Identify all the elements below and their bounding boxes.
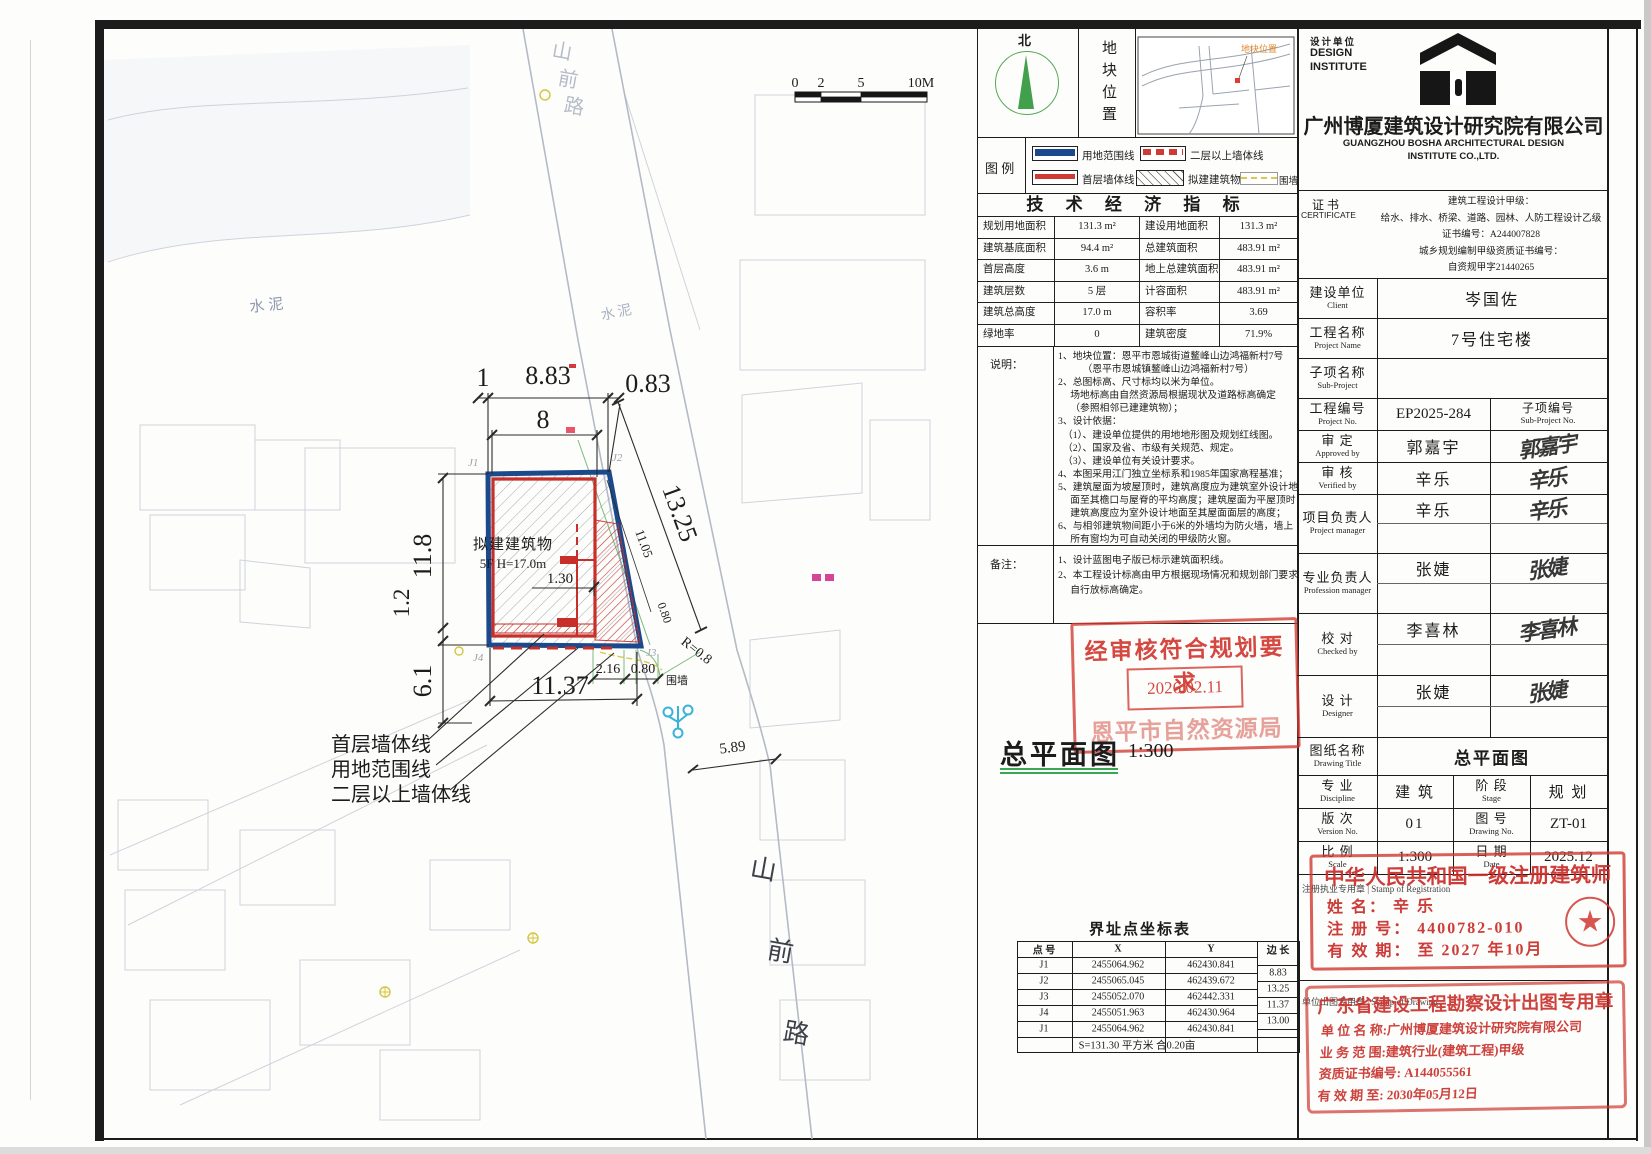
- scale-bar: 0 2 5 10M: [792, 76, 935, 102]
- row-label-cn: 设 计: [1321, 694, 1353, 709]
- ind-cell: 3.69: [1220, 303, 1297, 325]
- coords-edge: 8.83: [1269, 968, 1287, 979]
- tb-row-project-name: 工程名称Project Name 7号住宅楼: [1298, 318, 1607, 358]
- ind-cell: 绿地率: [978, 325, 1055, 347]
- coords-point: J2: [1040, 976, 1049, 987]
- ind-cell: 建筑密度: [1140, 325, 1220, 347]
- row-label-cn: 图纸名称: [1309, 744, 1365, 759]
- dim-11-37: 11.37: [531, 671, 589, 700]
- dim-0-83: 0.83: [625, 369, 671, 398]
- row-label-cn: 项目负责人: [1302, 511, 1372, 526]
- tb-row-profession-manager: 专业负责人Profession manager 张婕 张婕: [1298, 553, 1607, 613]
- dim-8-83: 8.83: [525, 361, 571, 390]
- row-value: 辛乐: [1377, 494, 1490, 524]
- row-value: [1377, 358, 1607, 398]
- frame-top: [95, 20, 1641, 29]
- svg-text:5: 5: [858, 76, 865, 91]
- tb-row-discipline-stage: 专 业Discipline 建 筑 阶 段Stage 规 划: [1298, 775, 1607, 808]
- indicators-title: 技 术 经 济 指 标: [978, 194, 1297, 217]
- row-label-en: Verified by: [1318, 481, 1356, 491]
- institution-stamp: 广东省建设工程勘察设计出图专用章 单 位 名 称:广州博厦建筑设计研究院有限公司…: [1305, 980, 1627, 1114]
- ind-cell: 131.3 m²: [1220, 217, 1297, 239]
- row-extra-en: Sub-Project No.: [1521, 416, 1576, 426]
- ind-cell: 总建筑面积: [1140, 239, 1220, 261]
- coords-x: 2455051.963: [1092, 1008, 1145, 1019]
- tb-row-version-dwgno: 版 次Version No. 01 图 号Drawing No. ZT-01: [1298, 808, 1607, 841]
- meta-label-en: Stage: [1482, 794, 1501, 804]
- meta-value: 建 筑: [1377, 775, 1453, 808]
- row-value: 张婕: [1377, 675, 1490, 706]
- titleblock-right: [1607, 29, 1609, 1138]
- dim-1-30: 1.30: [547, 571, 573, 587]
- coords-y: 462442.331: [1187, 992, 1235, 1003]
- location-map: 地块位置: [1137, 36, 1295, 135]
- approval-stamp-date: 2026.02.11: [1127, 666, 1244, 711]
- frame-right: [1636, 20, 1638, 1141]
- row-value: 李喜林: [1377, 613, 1490, 644]
- coords-edge: 11.37: [1267, 1000, 1289, 1011]
- row-label-en: Project manager: [1310, 526, 1365, 536]
- coords-header: Y: [1207, 944, 1214, 955]
- coords-x: 2455065.045: [1092, 976, 1145, 987]
- scan-edge-right: [1644, 0, 1651, 1154]
- svg-text:10M: 10M: [908, 76, 935, 91]
- architect-stamp-valid: 有 效 期： 至 2027 年10月: [1327, 935, 1543, 961]
- row-label-en: Checked by: [1317, 647, 1357, 657]
- row-label-en: Project Name: [1314, 341, 1361, 351]
- legend-label-fence: 围墙: [1279, 173, 1298, 187]
- utility-pole-icon: [664, 706, 693, 738]
- site-plan-drawing: 1 8.83 0.83 8 11.8 1.2 6.1 13.25 11.05 0…: [104, 29, 977, 1139]
- design-unit-en2: INSTITUTE: [1310, 61, 1367, 73]
- tb-row-project-no: 工程编号Project No. EP2025-284 子项编号Sub-Proje…: [1298, 398, 1607, 430]
- row-label-en: Client: [1327, 301, 1348, 311]
- row-label-cn: 审 定: [1321, 434, 1353, 449]
- remarks-label: 备注：: [990, 556, 1023, 572]
- plan-title-underline-1: [1000, 768, 1118, 770]
- row-label-cn: 工程编号: [1309, 402, 1365, 417]
- ind-cell: 规划用地面积: [978, 217, 1055, 239]
- row-value: 张婕: [1377, 553, 1490, 583]
- ind-cell: 建筑层数: [978, 282, 1055, 304]
- dim-11-05: 11.05: [632, 527, 656, 559]
- plan-title: 总平面图: [1000, 733, 1120, 772]
- coords-y: 462430.964: [1187, 1008, 1235, 1019]
- coords-y: 462430.841: [1187, 1024, 1235, 1035]
- ind-cell: 0: [1055, 325, 1140, 347]
- meta-value: ZT-01: [1530, 808, 1607, 841]
- building-label: 拟建建筑物: [473, 536, 553, 553]
- tb-row-designer: 设 计Designer 张婕 张婕: [1298, 675, 1607, 737]
- cert-lines: 建筑工程设计甲级： 给水、排水、桥梁、道路、园林、人防工程设计乙级 证书编号：A…: [1378, 194, 1604, 277]
- map-site-marker: [1235, 78, 1240, 83]
- road-name-top: 山 前 路: [550, 39, 586, 120]
- coords-point: J4: [1040, 1008, 1049, 1019]
- ind-cell: 5 层: [1055, 282, 1140, 304]
- institution-stamp-lines: 单 位 名 称:广州博厦建筑设计研究院有限公司 业 务 范 围:建筑行业(建筑工…: [1317, 1016, 1583, 1107]
- dim-13-25: 13.25: [656, 481, 703, 546]
- cert-label-en: CERTIFICATE: [1301, 210, 1356, 220]
- svg-text:前: 前: [765, 935, 796, 968]
- company-name-cn: 广州博厦建筑设计研究院有限公司: [1300, 110, 1607, 139]
- dim-0-80-right: 0.80: [655, 600, 675, 625]
- cement-label-right: 水泥: [600, 301, 637, 324]
- company-name-en1: GUANGZHOU BOSHA ARCHITECTURAL DESIGN: [1300, 138, 1607, 149]
- ind-cell: 71.9%: [1220, 325, 1297, 347]
- architect-stamp-emblem: [1565, 896, 1616, 947]
- row-label-cn: 建设单位: [1309, 286, 1365, 301]
- ind-cell: 地上总建筑面积: [1140, 260, 1220, 282]
- row-label-en: Approved by: [1315, 449, 1360, 459]
- meta-label: 专 业: [1321, 779, 1353, 794]
- indicators-table: 技 术 经 济 指 标 规划用地面积131.3 m²建设用地面积131.3 m²…: [978, 194, 1297, 347]
- legend-title: 图 例: [985, 158, 1014, 177]
- legend-label-boundary: 用地范围线: [1082, 148, 1135, 163]
- remarks-text: 1、设计蓝图电子版已标示建筑面积线。 2、本工程设计标高由甲方根据现场情况和规划…: [1058, 553, 1294, 598]
- map-site-label: 地块位置: [1241, 43, 1277, 54]
- coords-edge: 13.25: [1267, 984, 1290, 995]
- line-legend-v: [1025, 137, 1026, 193]
- row-label-cn: 校 对: [1321, 632, 1353, 647]
- tb-row-verified: 审 核Verified by 辛乐 辛乐: [1298, 462, 1607, 494]
- water-wash: [104, 45, 470, 262]
- coords-point: J1: [1040, 1024, 1049, 1035]
- meta-label-en: Drawing No.: [1469, 827, 1513, 837]
- svg-text:J4: J4: [473, 652, 484, 664]
- ind-cell: 容积率: [1140, 303, 1220, 325]
- ind-cell: 建设用地面积: [1140, 217, 1220, 239]
- signature: 辛乐: [1528, 460, 1569, 496]
- row-label-cn: 审 核: [1321, 466, 1353, 481]
- institution-stamp-title: 广东省建设工程勘察设计出图专用章: [1308, 987, 1622, 1018]
- tb-row-drawing-title: 图纸名称Drawing Title 总平面图: [1298, 737, 1607, 775]
- dim-11-8: 11.8: [408, 534, 437, 579]
- legend-label-building: 拟建建筑物: [1188, 172, 1241, 187]
- row-value: 辛乐: [1377, 462, 1490, 494]
- scan-edge-bottom: [0, 1147, 1651, 1154]
- north-label: 北: [1018, 30, 1031, 49]
- ind-cell: 131.3 m²: [1055, 217, 1140, 239]
- row-label-cn: 子项名称: [1309, 366, 1365, 381]
- leader-lines: [428, 634, 614, 790]
- ind-cell: 建筑基底面积: [978, 239, 1055, 261]
- ind-cell: 3.6 m: [1055, 260, 1140, 282]
- legend-label-upper-wall: 二层以上墙体线: [1190, 148, 1264, 163]
- tb-row-project-manager: 项目负责人Project manager 辛乐 辛乐: [1298, 494, 1607, 553]
- tb-row-approved: 审 定Approved by 郭嘉宇 郭嘉宇: [1298, 430, 1607, 462]
- label-first-floor-wall: 首层墙体线: [331, 733, 431, 756]
- meta-label-en: Discipline: [1320, 794, 1355, 804]
- line-notes-v: [1053, 347, 1054, 623]
- coords-edge: 13.00: [1267, 1016, 1290, 1027]
- legend-symbol-building: [1136, 170, 1184, 186]
- legend-symbol-upper-wall: [1140, 146, 1186, 161]
- ind-cell: 建筑总高度: [978, 303, 1055, 325]
- building-spec-label: 5F H=17.0m: [480, 556, 547, 571]
- label-fence: 围墙: [666, 673, 688, 687]
- legend-label-first-wall: 首层墙体线: [1082, 172, 1135, 187]
- plan-title-underline-2: [1000, 772, 1118, 774]
- tb-row-subproject: 子项名称Sub-Project: [1298, 358, 1607, 398]
- coords-header: 点 号: [1033, 942, 1056, 957]
- legend-symbol-first-wall: [1032, 170, 1078, 185]
- signature: 张婕: [1528, 672, 1569, 708]
- drawing-sheet: 1 8.83 0.83 8 11.8 1.2 6.1 13.25 11.05 0…: [0, 0, 1651, 1154]
- dim-5-89: 5.89: [719, 738, 747, 757]
- ind-cell: 首层高度: [978, 260, 1055, 282]
- svg-text:山: 山: [748, 853, 779, 886]
- row-value: 7号住宅楼: [1377, 318, 1607, 358]
- svg-text:路: 路: [781, 1017, 812, 1050]
- row-value: 郭嘉宇: [1377, 430, 1490, 462]
- signature: 李喜林: [1518, 609, 1578, 648]
- svg-text:J3: J3: [646, 647, 657, 659]
- architect-stamp-title: 中华人民共和国一级注册建筑师: [1312, 857, 1622, 890]
- row-value: EP2025-284: [1377, 398, 1490, 430]
- coords-x: 2455064.962: [1092, 1024, 1145, 1035]
- notes-text: 1、地块位置：恩平市恩城街道鳌峰山边鸿福新村7号 （恩平市恩城镇鳌峰山边鸿福新村…: [1058, 350, 1294, 546]
- dim-radius: R=0.8: [678, 635, 715, 668]
- coords-point: J1: [1040, 960, 1049, 971]
- row-label-cn: 工程名称: [1309, 326, 1365, 341]
- coords-x: 2455052.070: [1092, 992, 1145, 1003]
- design-unit-cn: 设计单位: [1310, 34, 1356, 48]
- site-location-panel-label: 地块位置: [1098, 40, 1119, 128]
- svg-text:0: 0: [792, 76, 799, 91]
- design-unit-en1: DESIGN: [1310, 47, 1352, 59]
- dim-2-16: 2.16: [596, 662, 621, 677]
- label-upper-wall: 二层以上墙体线: [331, 783, 471, 806]
- svg-text:路: 路: [562, 94, 586, 120]
- row-label-en: Profession manager: [1304, 586, 1371, 596]
- legend-symbol-boundary: [1032, 146, 1078, 161]
- line-north-v1: [1078, 29, 1079, 137]
- signature: 辛乐: [1528, 491, 1569, 527]
- tb-row-client: 建设单位Client 岑国佐: [1298, 278, 1607, 318]
- row-label-cn: 专业负责人: [1302, 571, 1372, 586]
- coords-y: 462430.841: [1187, 960, 1235, 971]
- plan-title-scale: 1:300: [1128, 740, 1174, 763]
- company-name-en2: INSTITUTE CO.,LTD.: [1300, 151, 1607, 162]
- svg-text:2: 2: [818, 76, 825, 91]
- ind-cell: 计容面积: [1140, 282, 1220, 304]
- coords-table: 点 号 X Y 边 长 J1 2455064.962 462430.841 J2…: [1017, 941, 1300, 1053]
- row-extra-cn: 子项编号: [1522, 402, 1574, 416]
- meta-label: 图 号: [1475, 812, 1507, 827]
- dim-0-80-bottom: 0.80: [631, 662, 656, 677]
- scan-edge-left: [30, 40, 31, 1100]
- row-label-en: Sub-Project: [1317, 381, 1357, 391]
- coords-header: X: [1114, 944, 1121, 955]
- svg-text:前: 前: [556, 67, 580, 93]
- dim-1-2: 1.2: [389, 589, 414, 618]
- notes-label: 说明：: [990, 356, 1023, 372]
- line-north-v2: [1135, 29, 1136, 137]
- coords-y: 462439.672: [1187, 976, 1235, 987]
- row-label-en: Project No.: [1318, 417, 1357, 427]
- row-value: 岑国佐: [1377, 278, 1607, 318]
- meta-label: 阶 段: [1475, 779, 1507, 794]
- tb-row-checked: 校 对Checked by 李喜林 李喜林: [1298, 613, 1607, 675]
- coords-footer: S=131.30 平方米 合0.20亩: [1079, 1038, 1196, 1053]
- signature: 郭嘉宇: [1518, 427, 1578, 466]
- meta-label: 版 次: [1321, 812, 1353, 827]
- dim-1: 1: [477, 363, 490, 392]
- svg-text:山: 山: [550, 39, 574, 65]
- frame-left: [95, 20, 104, 1141]
- meta-value: 01: [1377, 808, 1453, 841]
- meta-label-en: Version No.: [1317, 827, 1358, 837]
- row-label-en: Designer: [1322, 709, 1353, 719]
- ind-cell: 483.91 m²: [1220, 282, 1297, 304]
- ind-cell: 483.91 m²: [1220, 260, 1297, 282]
- dim-6-1: 6.1: [408, 665, 437, 698]
- row-label-en: Drawing Title: [1314, 759, 1361, 769]
- signature: 张婕: [1528, 550, 1569, 586]
- cement-label-left: 水泥: [249, 295, 289, 316]
- coords-header: 边 长: [1267, 942, 1290, 957]
- coords-x: 2455064.962: [1092, 960, 1145, 971]
- meta-value: 规 划: [1530, 775, 1607, 808]
- legend-symbol-fence: [1240, 172, 1278, 185]
- architect-stamp: 中华人民共和国一级注册建筑师 姓 名： 辛 乐 注 册 号： 4400782-0…: [1309, 851, 1626, 970]
- tb-line: [1297, 190, 1609, 191]
- label-land-boundary: 用地范围线: [331, 758, 431, 781]
- dim-8: 8: [537, 405, 550, 434]
- ind-cell: 483.91 m²: [1220, 239, 1297, 261]
- company-logo: [1420, 33, 1496, 105]
- north-arrow-needle: [1018, 55, 1034, 109]
- svg-text:J2: J2: [612, 452, 623, 464]
- ind-cell: 17.0 m: [1055, 303, 1140, 325]
- svg-text:J1: J1: [468, 457, 478, 469]
- coords-point: J3: [1040, 992, 1049, 1003]
- ind-cell: 94.4 m²: [1055, 239, 1140, 261]
- row-value: 总平面图: [1377, 737, 1607, 775]
- coords-title: 界址点坐标表: [1040, 918, 1240, 939]
